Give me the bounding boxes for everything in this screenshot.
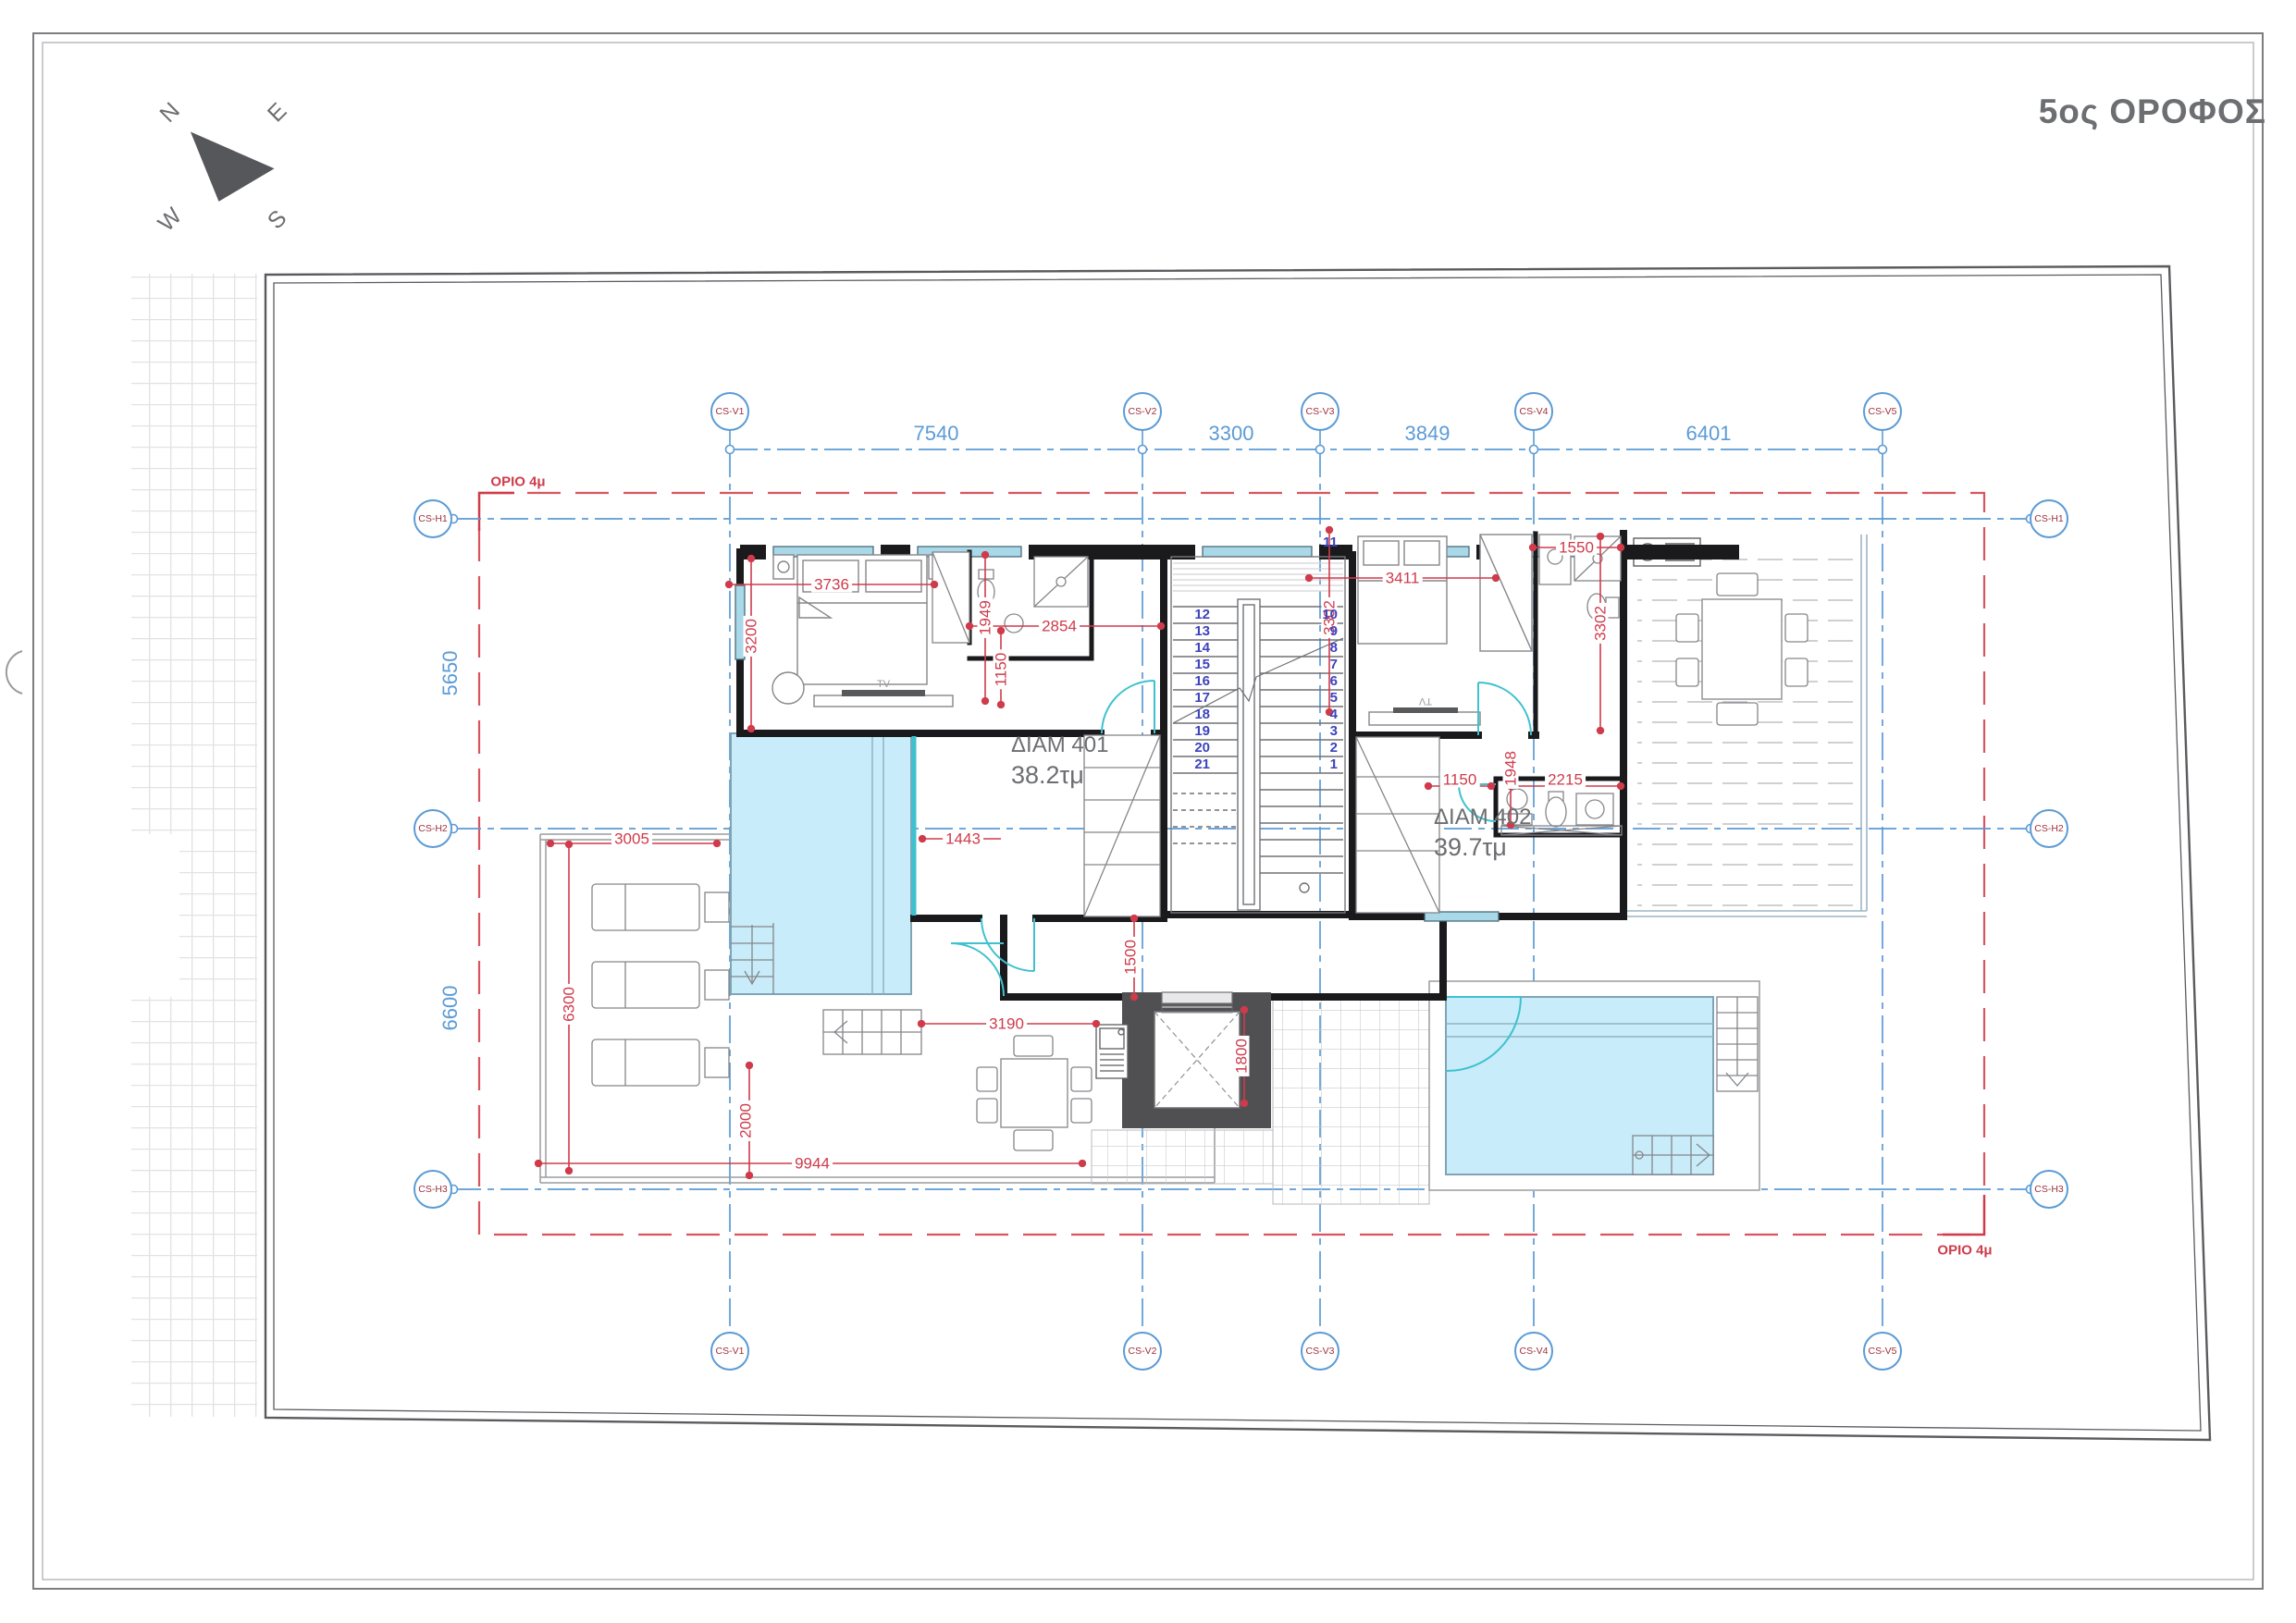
grid-bubble-h2-left: CS-H2 xyxy=(414,809,452,848)
door-corridor-left xyxy=(951,943,1004,996)
dim-terrace-depth: 6300 xyxy=(562,984,577,1025)
grid-bubble-v3-bottom: CS-V3 xyxy=(1301,1332,1339,1371)
dim-bed1-depth: 3200 xyxy=(744,616,759,657)
north-arrow-icon xyxy=(167,108,277,218)
floor-plan-sheet: 5ος ΟΡΟΦΟΣ N E S W CS-V1 CS-V2 CS-V3 CS-… xyxy=(0,0,2296,1623)
grid-bubble-v1-top: CS-V1 xyxy=(710,392,749,431)
stair-landing-mat xyxy=(1173,559,1343,594)
bedroom1-furniture xyxy=(772,555,953,707)
dim-bath2-depth: 3302 xyxy=(1593,603,1609,644)
pool-right xyxy=(1429,981,1759,1190)
grid-dim-h1-h2: 5650 xyxy=(440,647,461,700)
dim-bed2-width: 3411 xyxy=(1383,571,1423,586)
dim-bath2-width: 1550 xyxy=(1556,540,1597,556)
deck-steps-left xyxy=(823,1010,921,1054)
bedroom2-furniture xyxy=(1358,535,1532,725)
grid-bubble-v4-bottom: CS-V4 xyxy=(1514,1332,1553,1371)
grid-dim-v4-v5: 6401 xyxy=(1683,424,1735,444)
tv-screen-401 xyxy=(842,690,925,696)
grid-bubble-v2-bottom: CS-V2 xyxy=(1123,1332,1162,1371)
dim-pool1-offset: 1443 xyxy=(943,831,983,847)
setback-label-bottom: ΟΡΙΟ 4μ xyxy=(1937,1243,1992,1259)
pool-right-outer-stair xyxy=(1717,997,1758,1091)
door-bedroom1 xyxy=(1102,681,1154,733)
dining-table xyxy=(1001,1059,1068,1127)
chair-round xyxy=(772,672,804,704)
grid-dim-v1-v2: 7540 xyxy=(910,424,963,444)
wc-toilet xyxy=(1546,797,1566,827)
page-title: 5ος ΟΡΟΦΟΣ xyxy=(2035,92,2266,131)
sidewalk-strip xyxy=(6,274,257,1417)
dim-closet1-width: 2854 xyxy=(1039,619,1080,634)
curb-arc xyxy=(6,651,22,694)
dim-wc-depth: 1948 xyxy=(1503,748,1519,789)
grid-bubble-h3-left: CS-H3 xyxy=(414,1170,452,1209)
grid-bubble-v3-top: CS-V3 xyxy=(1301,392,1339,431)
door-deck-left xyxy=(981,918,1034,971)
pool-right-steps xyxy=(1633,1136,1713,1174)
grid-bubble-h3-right: CS-H3 xyxy=(2030,1170,2068,1209)
stair-numbers-lower-flight: 10987654321 xyxy=(1299,607,1338,773)
stair-402 xyxy=(1356,737,1439,913)
tv-label-402: TV xyxy=(1419,695,1432,707)
dim-elevator-depth: 1800 xyxy=(1234,1036,1250,1076)
dim-bed1-width: 3736 xyxy=(811,577,852,593)
grid-dim-v2-v3: 3300 xyxy=(1205,424,1258,444)
grid-bubble-v2-top: CS-V2 xyxy=(1123,392,1162,431)
stair-numbers-upper-flight: 12131415161718192021 xyxy=(1177,607,1210,773)
dim-plot-width: 9944 xyxy=(792,1156,833,1172)
outdoor-sink-unit xyxy=(1096,1025,1128,1078)
grid-bubble-v1-bottom: CS-V1 xyxy=(710,1332,749,1371)
pergola-terrace xyxy=(1626,535,1867,916)
grid-bubble-h2-right: CS-H2 xyxy=(2030,809,2068,848)
apartment-401-area: 38.2τμ xyxy=(1011,759,1108,792)
grid-bubble-v4-top: CS-V4 xyxy=(1514,392,1553,431)
apartment-402-label: ΔΙΑΜ 402 39.7τμ xyxy=(1434,803,1531,864)
tv-bench-402 xyxy=(1369,712,1480,725)
stair-number-landing: 11 xyxy=(1312,535,1338,550)
setback-label-top: ΟΡΙΟ 4μ xyxy=(490,474,545,490)
door-bath2 xyxy=(1478,682,1531,735)
apartment-401-name: ΔΙΑΜ 401 xyxy=(1011,731,1108,759)
tv-screen-402 xyxy=(1393,707,1458,713)
dining-set-deck xyxy=(977,1036,1092,1150)
apartment-402-name: ΔΙΑΜ 402 xyxy=(1434,803,1531,831)
tv-bench-401 xyxy=(814,695,953,707)
sink-401 xyxy=(1005,614,1023,633)
apartment-402-area: 39.7τμ xyxy=(1434,831,1531,864)
grid-bubble-v5-bottom: CS-V5 xyxy=(1863,1332,1902,1371)
grid-bubble-v5-top: CS-V5 xyxy=(1863,392,1902,431)
dim-entry1-offset: 1150 xyxy=(994,650,1009,690)
grid-bubble-h1-right: CS-H1 xyxy=(2030,499,2068,538)
dim-wc-width: 1150 xyxy=(1440,772,1480,788)
dim-deck-width: 3190 xyxy=(986,1016,1027,1032)
dim-corridor-width: 1500 xyxy=(1123,937,1139,977)
plan-drawing xyxy=(0,0,2296,1623)
dim-wc-length: 2215 xyxy=(1545,772,1586,788)
pool-left xyxy=(731,733,921,1054)
tv-label-401: TV xyxy=(877,679,890,690)
grid-dim-v3-v4: 3849 xyxy=(1401,424,1454,444)
grid-dim-h2-h3: 6600 xyxy=(440,982,461,1035)
unit-stairs xyxy=(1084,735,1439,916)
apartment-401-label: ΔΙΑΜ 401 38.2τμ xyxy=(1011,731,1108,792)
grid-bubble-h1-left: CS-H1 xyxy=(414,499,452,538)
sun-loungers xyxy=(592,884,729,1086)
dim-pool1-setback: 2000 xyxy=(738,1100,754,1141)
dim-terrace-width: 3005 xyxy=(611,831,652,847)
dim-bath1-depth: 1949 xyxy=(978,597,994,638)
